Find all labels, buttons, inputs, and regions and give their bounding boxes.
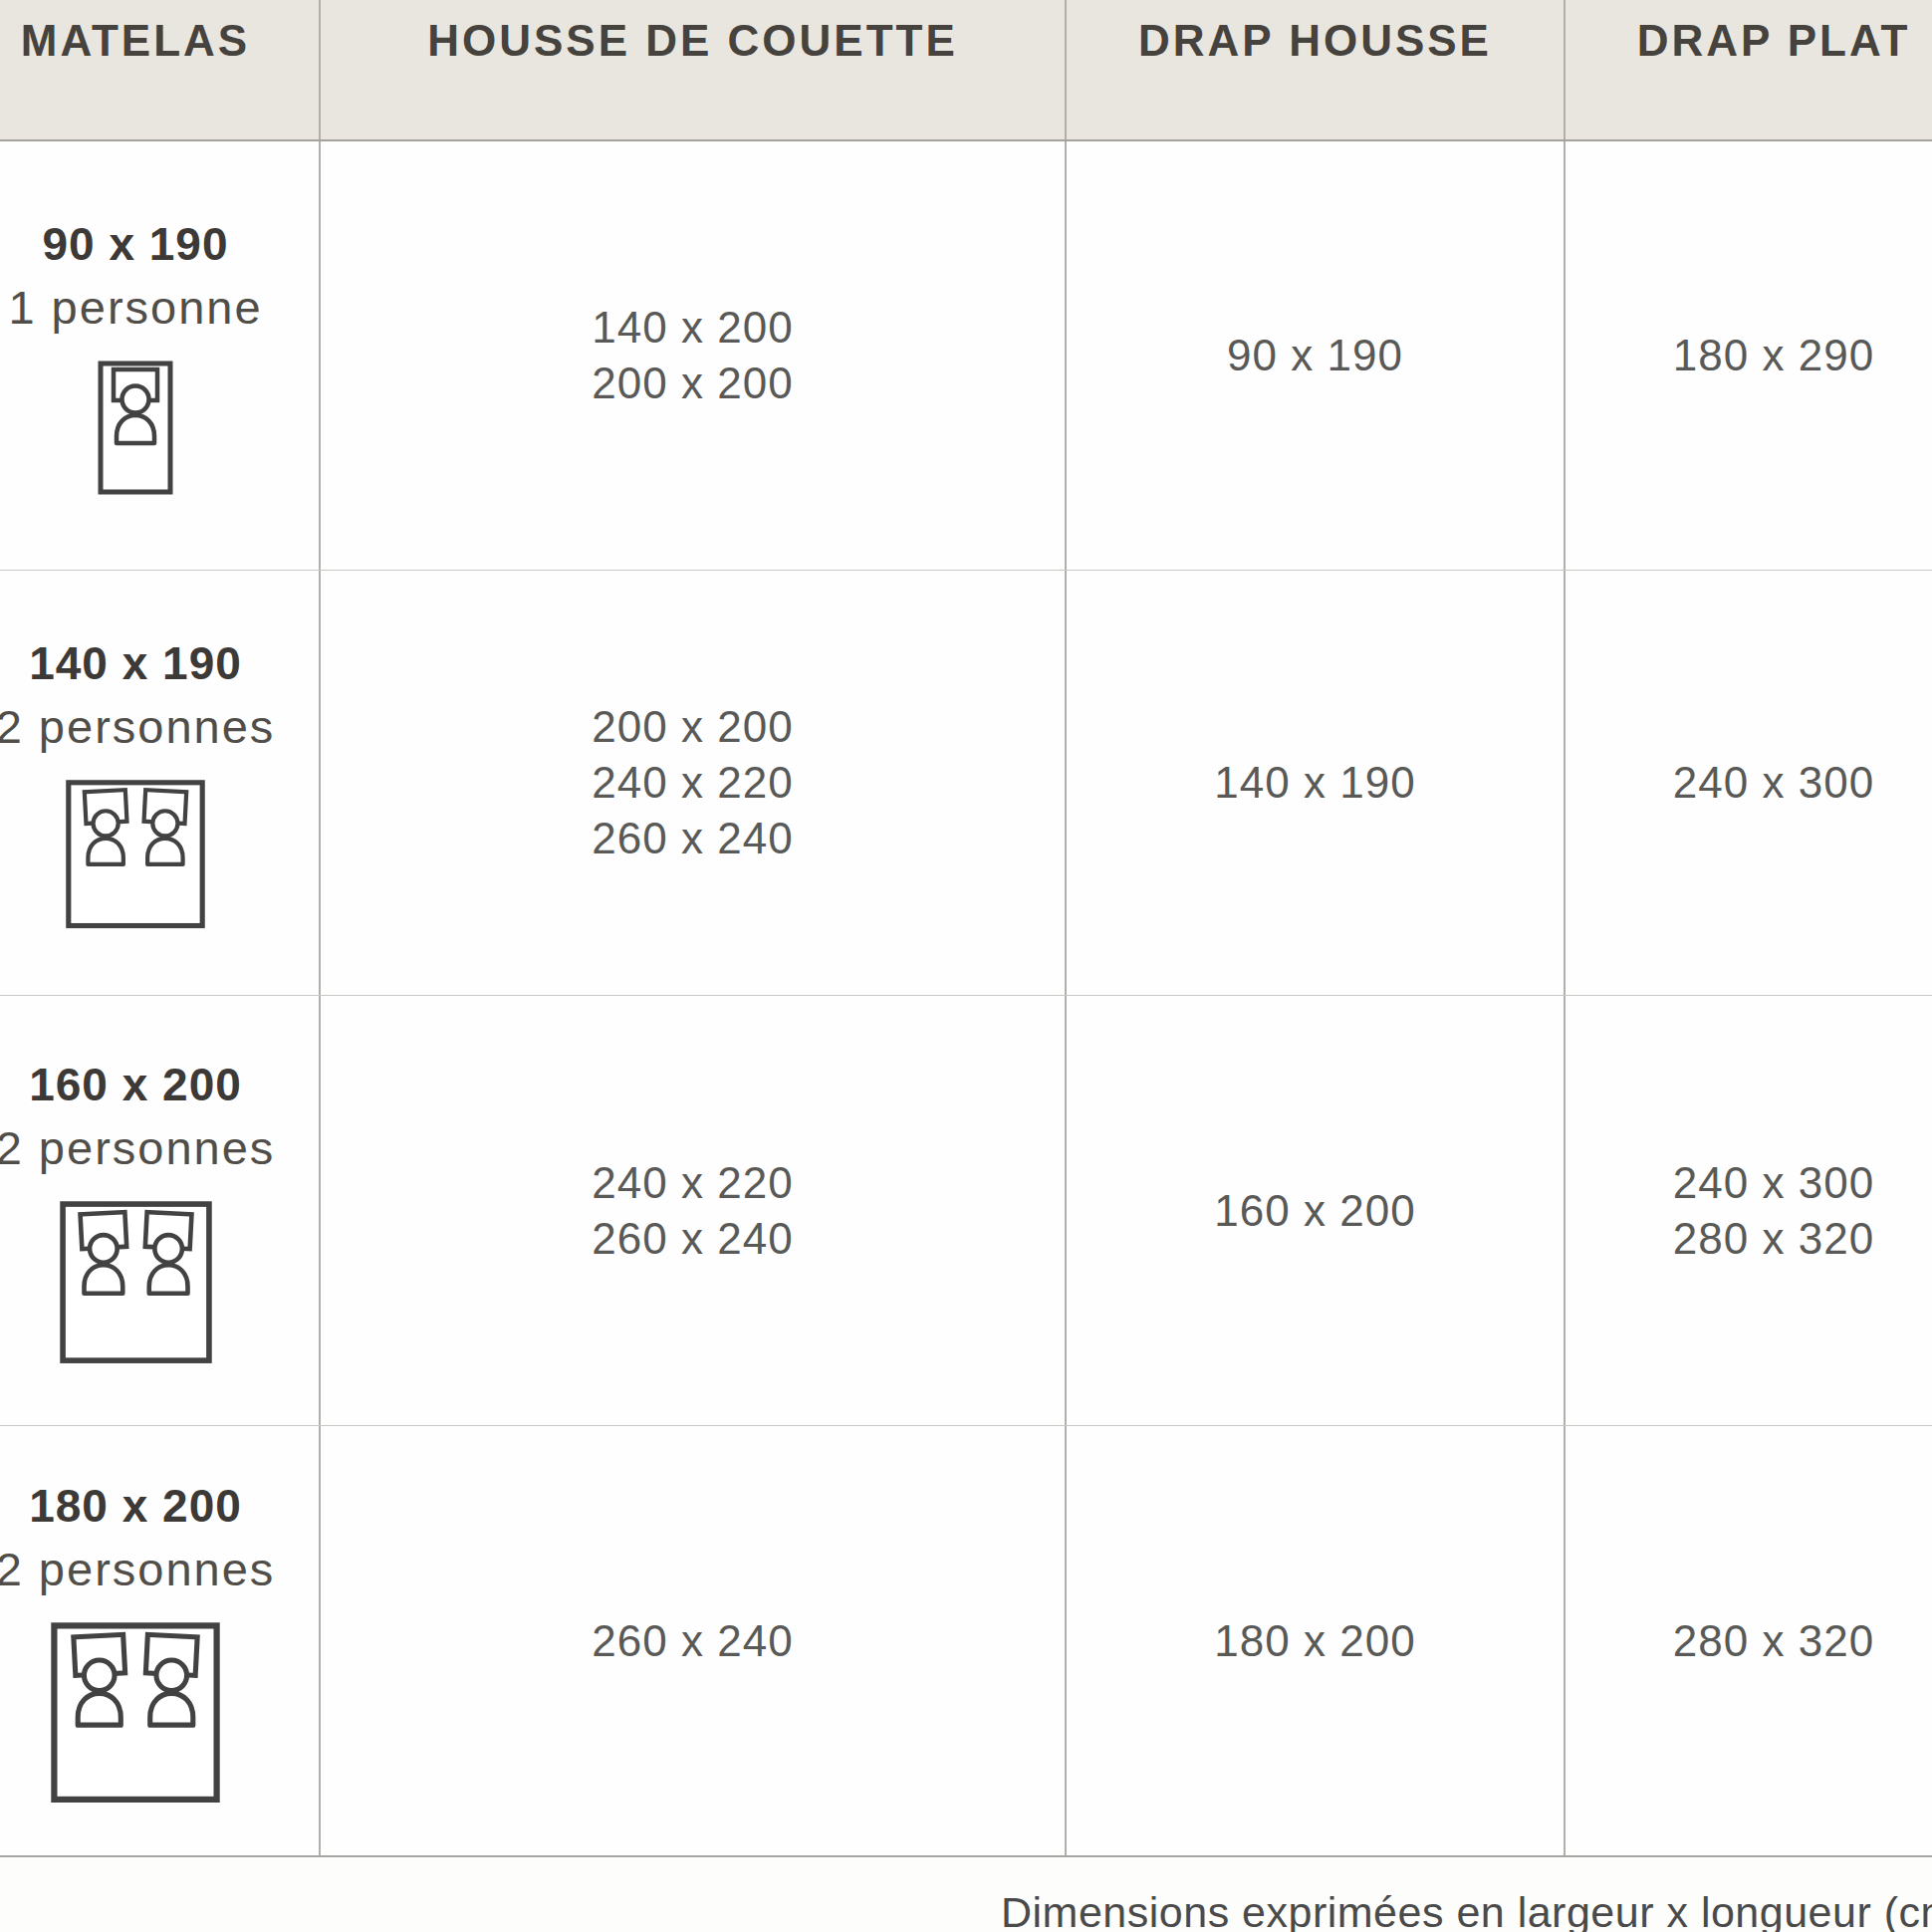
mattress-cell: 140 x 190 2 personnes [0, 571, 321, 995]
flat-sheet-cell: 280 x 320 [1566, 1426, 1932, 1855]
size-value: 200 x 200 [592, 356, 793, 411]
capacity-label: 2 personnes [0, 1120, 275, 1175]
fitted-sheet-cell: 90 x 190 [1067, 141, 1566, 570]
table-row: 140 x 190 2 personnes 200 x 200240 x 220… [0, 571, 1932, 996]
duvet-cover-cell: 240 x 220260 x 240 [321, 996, 1067, 1425]
size-value: 260 x 240 [592, 1613, 793, 1669]
table-row: 160 x 200 2 personnes 240 x 220260 x 240… [0, 996, 1932, 1426]
double-bed-icon [66, 780, 205, 928]
column-header-0: MATELAS [0, 0, 321, 139]
column-header-2: DRAP HOUSSE [1067, 0, 1566, 139]
table-header-row: MATELASHOUSSE DE COUETTEDRAP HOUSSEDRAP … [0, 0, 1932, 141]
capacity-label: 1 personne [8, 280, 262, 335]
size-value: 200 x 200 [592, 699, 793, 755]
size-value: 140 x 200 [592, 300, 793, 356]
mattress-cell: 160 x 200 2 personnes [0, 996, 321, 1425]
capacity-label: 2 personnes [0, 699, 275, 754]
bed-icon [98, 361, 173, 495]
mattress-size: 90 x 190 [42, 217, 228, 271]
flat-sheet-cell: 240 x 300280 x 320 [1566, 996, 1932, 1425]
size-value: 240 x 300 [1673, 1155, 1874, 1211]
mattress-cell: 90 x 190 1 personne [0, 141, 321, 570]
flat-sheet-cell: 180 x 290 [1566, 141, 1932, 570]
size-value: 260 x 240 [592, 811, 793, 866]
mattress-size: 160 x 200 [29, 1058, 242, 1111]
table-row: 90 x 190 1 personne 140 x 200200 x 200 9… [0, 141, 1932, 571]
bed-icon [66, 780, 205, 928]
capacity-label: 2 personnes [0, 1542, 275, 1596]
size-value: 240 x 300 [1673, 755, 1874, 811]
size-value: 280 x 320 [1673, 1211, 1874, 1267]
size-value: 180 x 290 [1673, 328, 1874, 383]
fitted-sheet-cell: 140 x 190 [1067, 571, 1566, 995]
mattress-size: 140 x 190 [29, 636, 242, 690]
mattress-size: 180 x 200 [29, 1479, 242, 1533]
size-value: 240 x 220 [592, 1155, 793, 1211]
double-bed-icon [51, 1622, 220, 1803]
column-header-1: HOUSSE DE COUETTE [321, 0, 1067, 139]
bedding-size-table: MATELASHOUSSE DE COUETTEDRAP HOUSSEDRAP … [0, 0, 1932, 1857]
size-value: 140 x 190 [1214, 755, 1415, 811]
fitted-sheet-cell: 160 x 200 [1067, 996, 1566, 1425]
bed-icon [51, 1622, 220, 1803]
table-row: 180 x 200 2 personnes 260 x 240 180 x 20… [0, 1426, 1932, 1857]
size-value: 160 x 200 [1214, 1183, 1415, 1239]
duvet-cover-cell: 200 x 200240 x 220260 x 240 [321, 571, 1067, 995]
size-value: 260 x 240 [592, 1211, 793, 1267]
dimensions-footnote: Dimensions exprimées en largeur x longue… [1001, 1888, 1932, 1932]
duvet-cover-cell: 260 x 240 [321, 1426, 1067, 1855]
mattress-cell: 180 x 200 2 personnes [0, 1426, 321, 1855]
flat-sheet-cell: 240 x 300 [1566, 571, 1932, 995]
size-value: 180 x 200 [1214, 1613, 1415, 1669]
duvet-cover-cell: 140 x 200200 x 200 [321, 141, 1067, 570]
double-bed-icon [60, 1201, 212, 1363]
column-header-3: DRAP PLAT [1566, 0, 1932, 139]
size-value: 90 x 190 [1227, 328, 1403, 383]
fitted-sheet-cell: 180 x 200 [1067, 1426, 1566, 1855]
table-body: 90 x 190 1 personne 140 x 200200 x 200 9… [0, 141, 1932, 1857]
bed-icon [60, 1201, 212, 1363]
size-value: 280 x 320 [1673, 1613, 1874, 1669]
single-bed-icon [98, 361, 173, 495]
size-value: 240 x 220 [592, 755, 793, 811]
